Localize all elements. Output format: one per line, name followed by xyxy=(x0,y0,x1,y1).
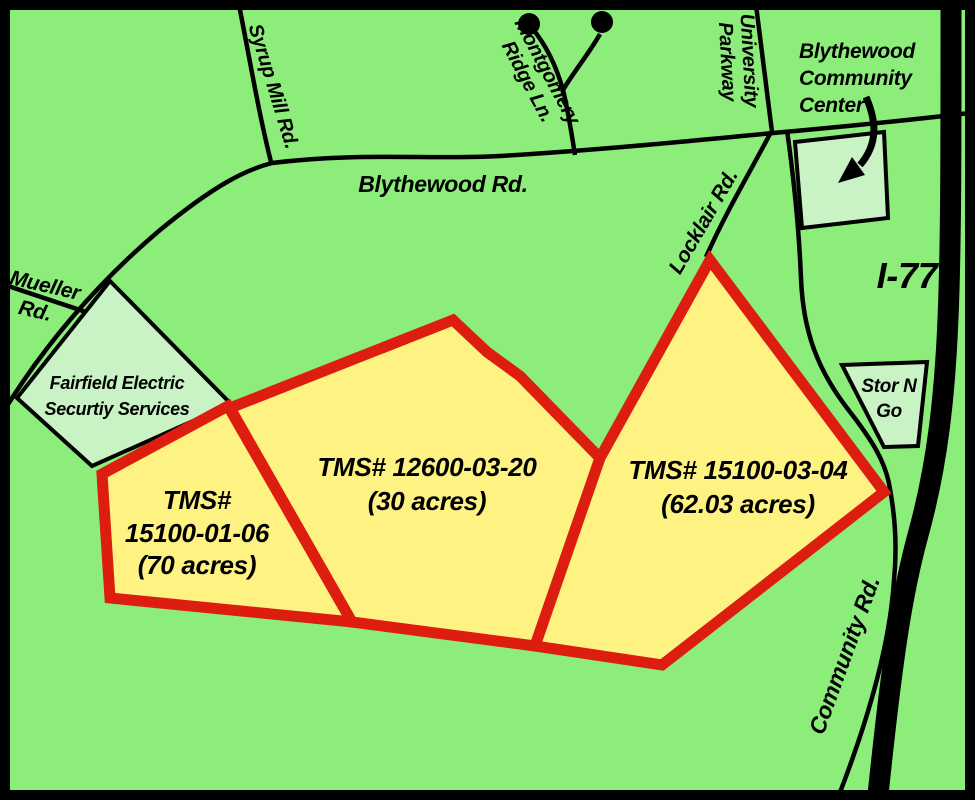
stor-n-go-label-line1: Stor N xyxy=(861,376,918,397)
community-center-label-line1: Blythewood xyxy=(799,40,916,63)
parcel1-label-line1: TMS# xyxy=(163,485,232,515)
parcel-map: Blythewood Rd. Syrup Mill Rd. Mueller Rd… xyxy=(0,0,975,800)
i77-highway-label: I-77 xyxy=(877,255,940,296)
university-label-line2: Parkway xyxy=(714,22,740,103)
fairfield-label-line1: Fairfield Electric xyxy=(50,373,185,393)
parcel1-label-line2: 15100-01-06 xyxy=(125,518,270,548)
parcel2-label-line1: TMS# 12600-03-20 xyxy=(317,452,537,482)
stor-n-go-label-line2: Go xyxy=(876,401,902,422)
montgomery-culdesac-dot-right xyxy=(591,11,613,33)
parcel3-label-line2: (62.03 acres) xyxy=(661,489,815,519)
community-center-label-line2: Community xyxy=(799,67,913,90)
parcel1-label-line3: (70 acres) xyxy=(138,550,256,580)
blythewood-road-label: Blythewood Rd. xyxy=(358,171,528,197)
community-center-label-line3: Center xyxy=(799,94,866,117)
parcel3-label-line1: TMS# 15100-03-04 xyxy=(628,455,848,485)
fairfield-label-line2: Securtiy Services xyxy=(45,399,190,419)
university-parkway-label: University Parkway xyxy=(714,13,763,110)
map-canvas: Blythewood Rd. Syrup Mill Rd. Mueller Rd… xyxy=(0,0,975,800)
parcel2-label-line2: (30 acres) xyxy=(368,486,486,516)
